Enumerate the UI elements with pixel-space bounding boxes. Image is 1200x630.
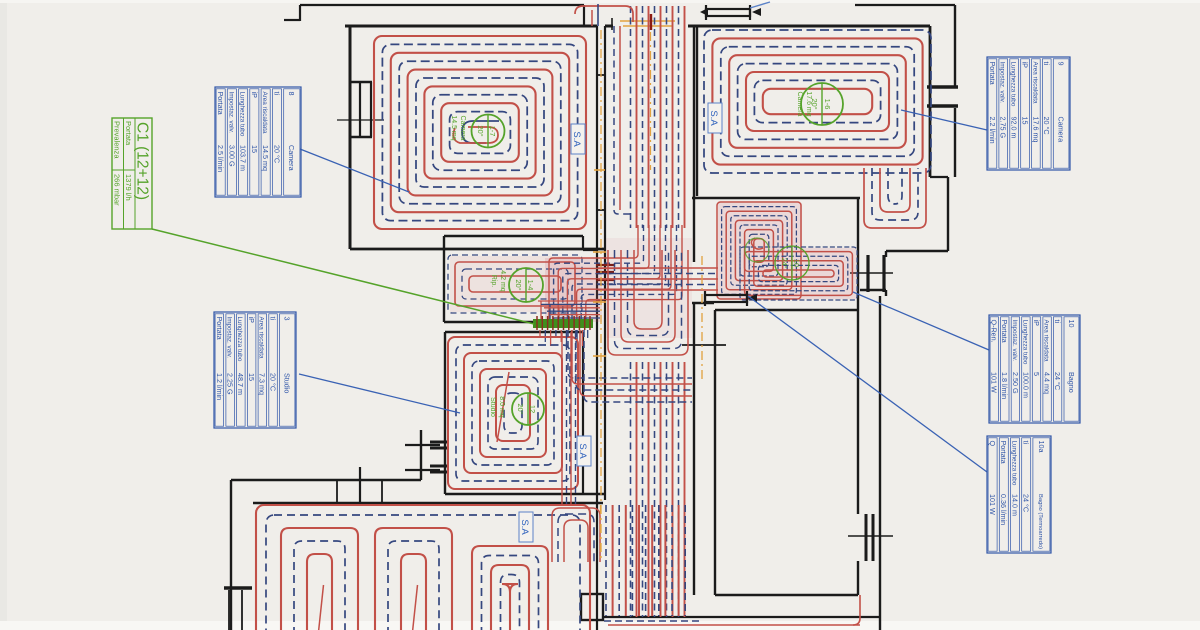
svg-text:1-4: 1-4	[526, 280, 535, 291]
svg-text:Camera: Camera	[459, 116, 466, 141]
svg-text:iP: iP	[1032, 320, 1041, 327]
svg-text:Portata: Portata	[215, 317, 224, 340]
svg-text:2.5 l/min: 2.5 l/min	[216, 145, 225, 172]
svg-text:Portata: Portata	[999, 441, 1008, 464]
svg-text:20°: 20°	[514, 279, 523, 290]
svg-text:iP: iP	[1020, 62, 1029, 69]
svg-text:S.A: S.A	[708, 110, 719, 126]
svg-text:Lunghezza tubo: Lunghezza tubo	[1010, 441, 1017, 486]
svg-text:Portata: Portata	[216, 92, 225, 115]
svg-text:20°: 20°	[516, 403, 525, 414]
svg-text:Portata: Portata	[1000, 320, 1009, 343]
svg-text:ti: ti	[1042, 62, 1051, 66]
svg-text:ti: ti	[269, 317, 278, 321]
svg-text:ti: ti	[272, 92, 281, 96]
svg-text:3: 3	[283, 317, 292, 321]
svg-text:Lunghezza tubo: Lunghezza tubo	[1021, 320, 1028, 365]
svg-text:ti: ti	[1053, 320, 1062, 324]
svg-text:Impostaz. valv.: Impostaz. valv.	[226, 317, 233, 359]
svg-text:Camera: Camera	[1057, 117, 1066, 143]
svg-text:Impostaz. valv.: Impostaz. valv.	[1011, 320, 1018, 362]
svg-text:Studio: Studio	[283, 373, 292, 393]
svg-text:103.7 m: 103.7 m	[239, 145, 248, 171]
svg-text:Bagno: Bagno	[1067, 372, 1076, 393]
svg-text:12: 12	[528, 405, 537, 413]
svg-text:Portata: Portata	[988, 62, 997, 85]
svg-text:1-6: 1-6	[823, 99, 832, 110]
svg-text:1379 l/h: 1379 l/h	[124, 174, 133, 201]
svg-text:Lunghezza tubo: Lunghezza tubo	[1010, 62, 1017, 107]
svg-text:C1 (12+12): C1 (12+12)	[134, 122, 151, 200]
svg-text:2.2 l/min: 2.2 l/min	[988, 117, 997, 144]
svg-text:5: 5	[1032, 372, 1041, 376]
svg-text:ti: ti	[1022, 441, 1031, 445]
svg-text:Impostaz. valv.: Impostaz. valv.	[227, 92, 234, 134]
svg-text:Camera: Camera	[287, 145, 296, 171]
svg-text:9: 9	[1057, 62, 1066, 66]
svg-text:iP: iP	[247, 317, 256, 324]
svg-text:4.2 mq: 4.2 mq	[499, 270, 506, 292]
svg-text:Lunghezza tubo: Lunghezza tubo	[236, 317, 243, 362]
svg-text:17.6 mq: 17.6 mq	[805, 91, 812, 116]
svg-text:20 °C: 20 °C	[1042, 117, 1051, 135]
svg-text:8.0 mq: 8.0 mq	[498, 396, 505, 418]
svg-text:S.A: S.A	[519, 519, 530, 535]
svg-text:Lunghezza tubo: Lunghezza tubo	[239, 92, 246, 137]
svg-text:S.A: S.A	[571, 131, 582, 147]
svg-text:Area riscaldata: Area riscaldata	[1031, 62, 1038, 104]
svg-text:2.75 G: 2.75 G	[999, 117, 1008, 139]
svg-text:Area riscaldata: Area riscaldata	[261, 92, 268, 134]
svg-text:20°: 20°	[476, 125, 485, 136]
svg-text:Studio: Studio	[489, 397, 496, 417]
svg-text:4.4 mq: 4.4 mq	[1043, 372, 1052, 394]
svg-text:10: 10	[792, 259, 801, 267]
svg-text:14.5 mq: 14.5 mq	[261, 145, 270, 171]
svg-text:Impostaz. valv.: Impostaz. valv.	[999, 62, 1006, 104]
svg-text:Prevalenza: Prevalenza	[113, 121, 122, 159]
svg-text:S.A: S.A	[577, 443, 588, 459]
svg-text:Q-Ren.: Q-Ren.	[990, 320, 999, 343]
svg-text:24°: 24°	[780, 258, 788, 269]
svg-text:101 W: 101 W	[988, 494, 997, 515]
svg-text:Bagno (Termoarredo): Bagno (Termoarredo)	[1037, 494, 1043, 549]
svg-text:92.0 m: 92.0 m	[1010, 117, 1019, 139]
svg-text:8: 8	[287, 92, 296, 96]
svg-text:7.3 mq: 7.3 mq	[258, 373, 267, 395]
svg-text:101 W: 101 W	[990, 372, 999, 393]
svg-text:20 °C: 20 °C	[272, 145, 281, 163]
svg-text:266 mbar: 266 mbar	[113, 174, 122, 206]
svg-text:1.2 l/min: 1.2 l/min	[215, 373, 224, 400]
svg-text:20 °C: 20 °C	[269, 373, 278, 391]
svg-text:2.50 G: 2.50 G	[1011, 372, 1020, 394]
svg-text:14.5 mq: 14.5 mq	[450, 115, 457, 140]
svg-text:100.0 m: 100.0 m	[1021, 372, 1030, 398]
svg-text:Area riscaldata: Area riscaldata	[258, 317, 265, 359]
svg-text:0.36 l/min: 0.36 l/min	[999, 494, 1008, 525]
svg-text:Portata: Portata	[124, 121, 133, 146]
svg-text:10a: 10a	[1037, 441, 1046, 453]
svg-text:24 °C: 24 °C	[1053, 372, 1062, 390]
svg-text:3.00 G: 3.00 G	[227, 145, 236, 167]
svg-text:10: 10	[1067, 320, 1076, 328]
svg-text:14.0 m: 14.0 m	[1010, 494, 1019, 516]
svg-text:Camera: Camera	[796, 92, 803, 117]
svg-text:2.25 G: 2.25 G	[226, 373, 235, 395]
svg-text:Q: Q	[988, 441, 997, 447]
svg-text:Area riscaldata: Area riscaldata	[1043, 320, 1050, 362]
svg-text:48.7 m: 48.7 m	[236, 373, 245, 395]
svg-text:1-7: 1-7	[488, 126, 497, 137]
svg-text:15: 15	[250, 145, 259, 153]
svg-text:iP: iP	[250, 92, 259, 99]
svg-text:15: 15	[247, 373, 256, 381]
svg-text:Rip.: Rip.	[490, 275, 497, 288]
svg-text:15: 15	[1020, 117, 1029, 125]
svg-text:17.6 mq: 17.6 mq	[1031, 117, 1040, 143]
svg-text:1.8 l/min: 1.8 l/min	[1000, 372, 1009, 399]
svg-text:24 °C: 24 °C	[1022, 494, 1031, 512]
